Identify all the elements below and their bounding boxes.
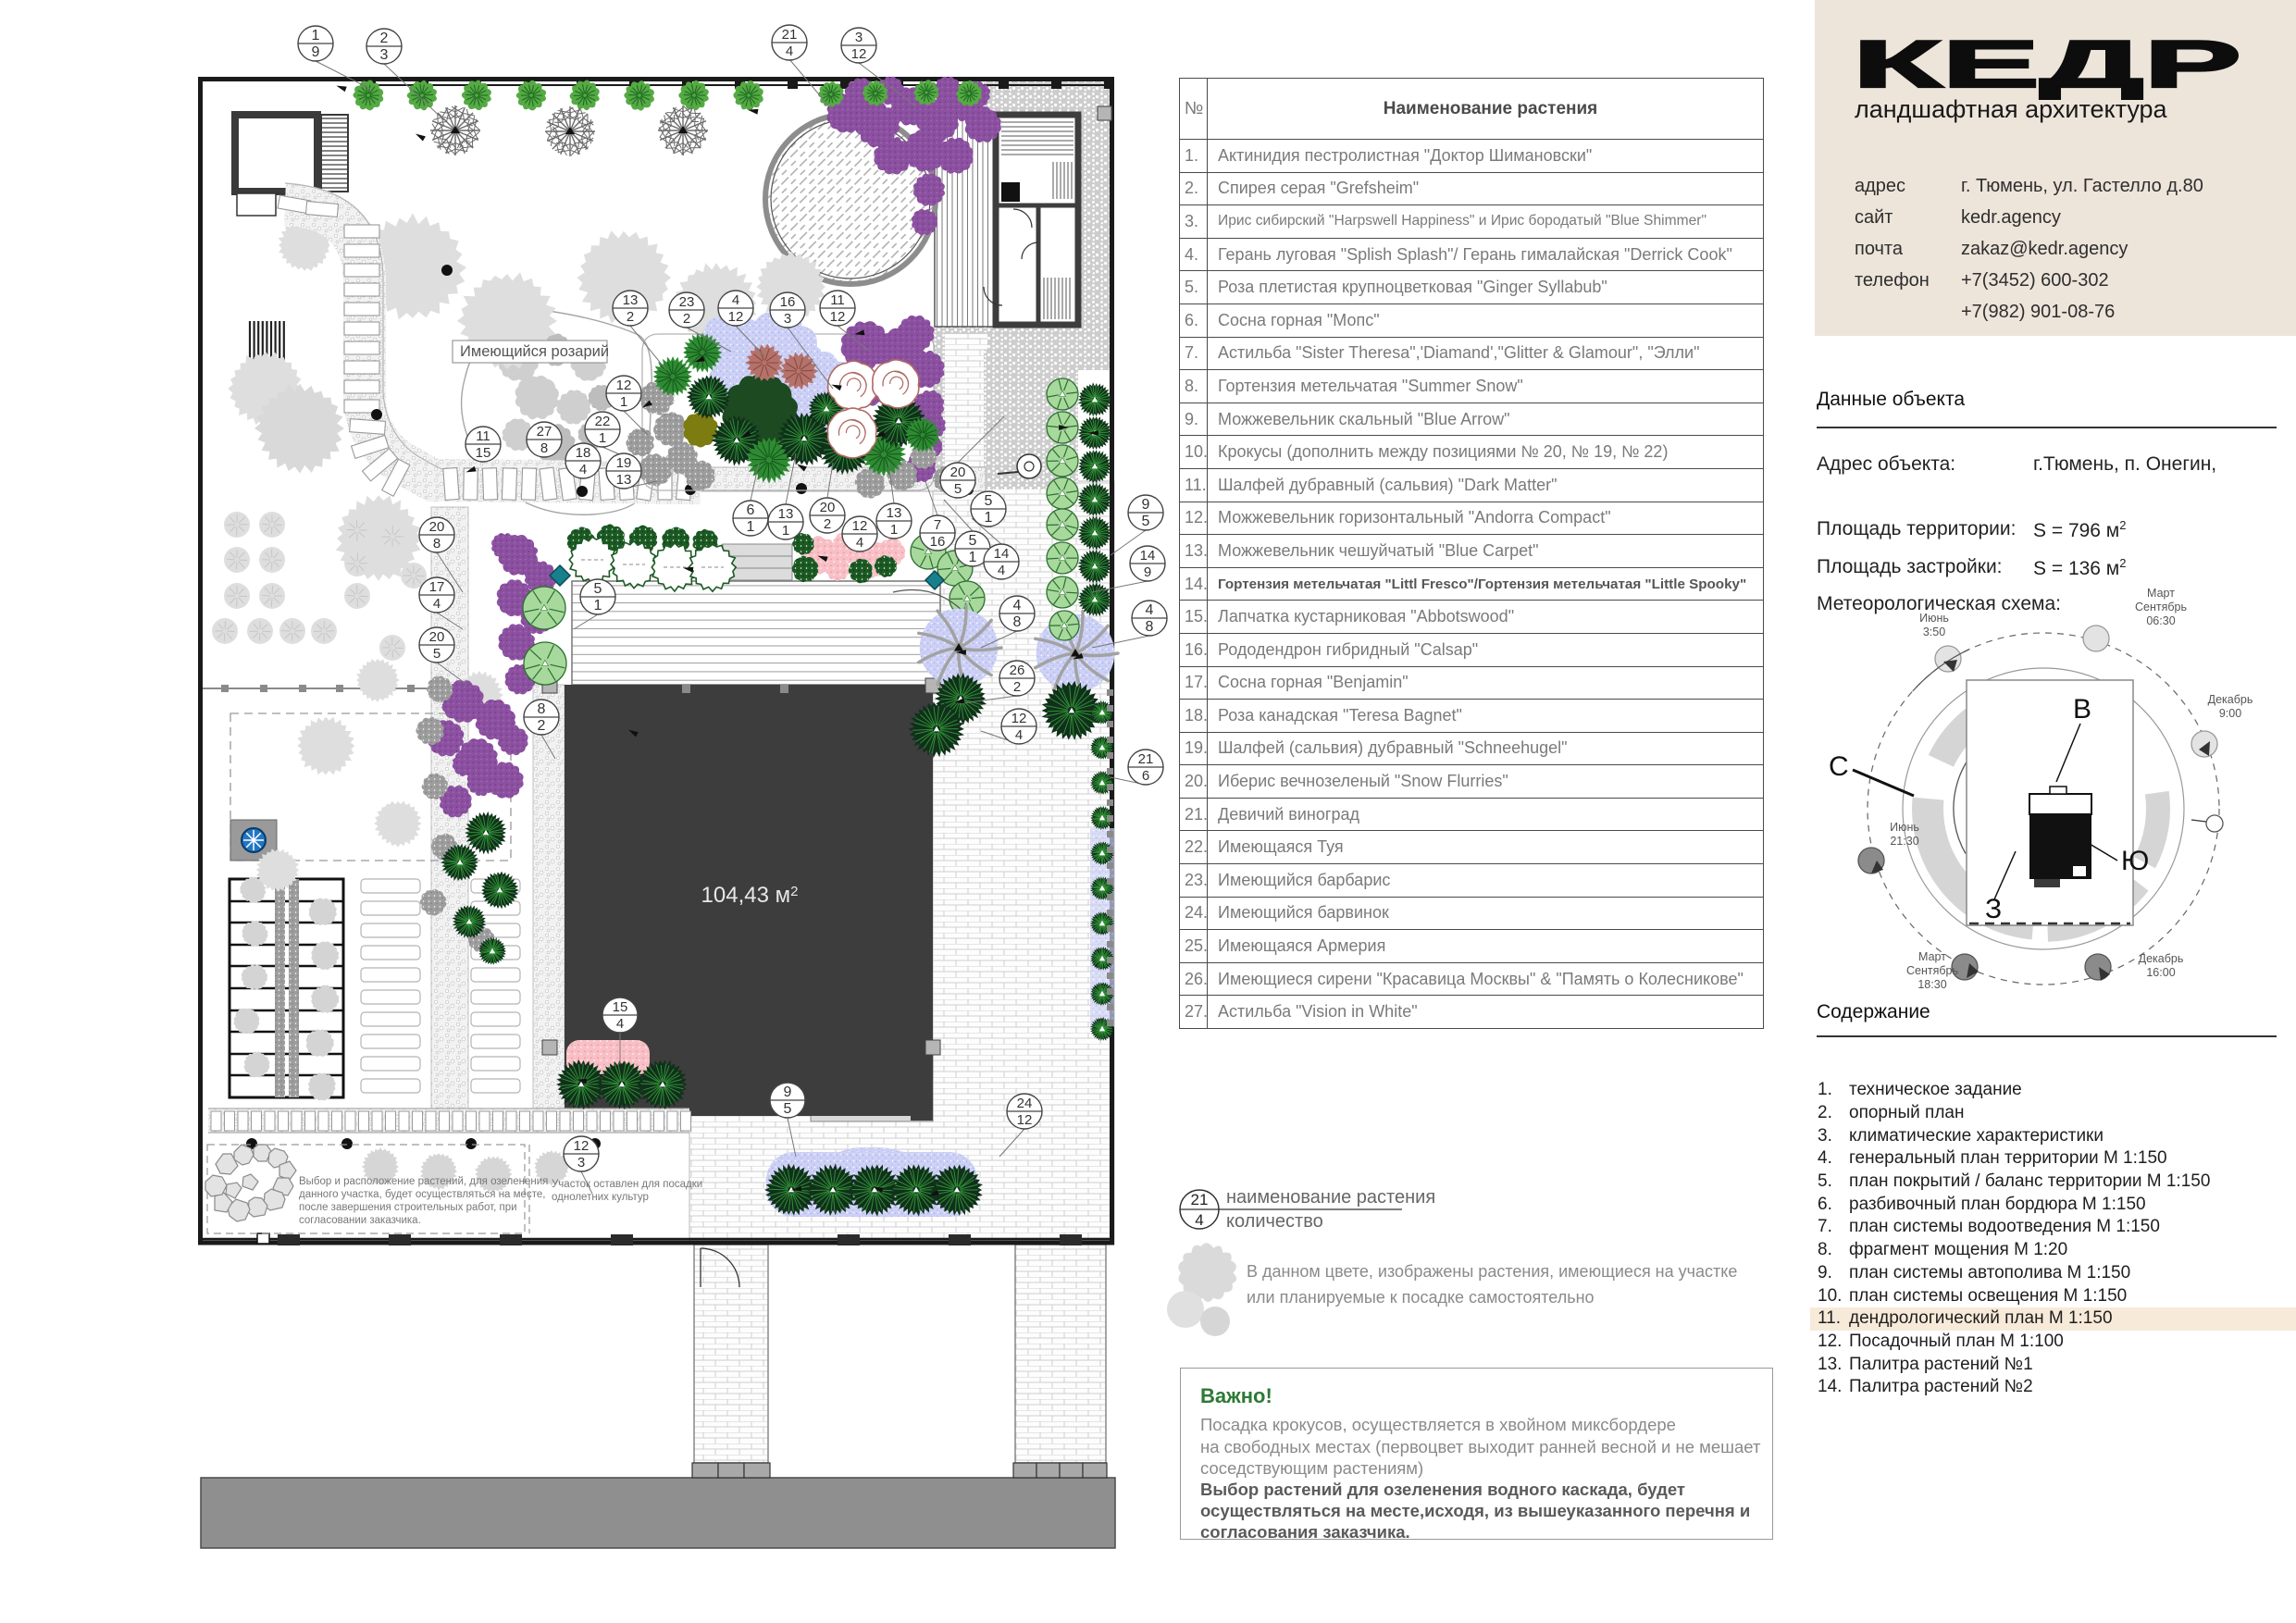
svg-text:4: 4 xyxy=(856,535,863,551)
svg-text:2: 2 xyxy=(538,718,546,734)
svg-text:12: 12 xyxy=(728,309,744,325)
svg-text:12: 12 xyxy=(574,1138,590,1154)
svg-text:Участок оставлен для посадки: Участок оставлен для посадки xyxy=(552,1179,702,1190)
svg-text:9:00: 9:00 xyxy=(2219,707,2241,720)
svg-text:5: 5 xyxy=(594,581,602,597)
svg-text:16: 16 xyxy=(930,534,946,550)
svg-text:11: 11 xyxy=(476,428,490,444)
svg-text:4: 4 xyxy=(1015,727,1023,743)
svg-text:после завершения строительных: после завершения строительных работ, при xyxy=(299,1202,517,1213)
svg-text:Выбор и расположение растений,: Выбор и расположение растений, для озеле… xyxy=(299,1176,548,1187)
svg-text:4: 4 xyxy=(616,1016,624,1032)
svg-text:18:30: 18:30 xyxy=(1917,978,1946,991)
svg-text:15: 15 xyxy=(613,999,628,1015)
svg-text:9: 9 xyxy=(312,44,320,60)
svg-text:1: 1 xyxy=(890,522,898,538)
svg-text:8: 8 xyxy=(1013,614,1022,630)
svg-text:5: 5 xyxy=(969,533,977,549)
svg-text:19: 19 xyxy=(616,455,632,471)
svg-text:3: 3 xyxy=(380,47,389,63)
svg-text:11: 11 xyxy=(830,292,845,308)
svg-text:8: 8 xyxy=(540,440,548,456)
svg-text:6: 6 xyxy=(1142,768,1149,784)
svg-text:21:30: 21:30 xyxy=(1890,835,1918,848)
svg-text:1: 1 xyxy=(782,523,789,539)
svg-text:20: 20 xyxy=(820,500,836,515)
svg-text:6: 6 xyxy=(747,502,755,518)
svg-text:З: З xyxy=(1985,894,2002,924)
svg-text:9: 9 xyxy=(1142,497,1150,513)
svg-text:1: 1 xyxy=(312,28,320,43)
svg-text:12: 12 xyxy=(1017,1112,1033,1128)
svg-text:Март: Март xyxy=(1918,950,1946,963)
svg-text:12: 12 xyxy=(616,378,632,393)
svg-text:8: 8 xyxy=(538,701,546,717)
svg-text:12: 12 xyxy=(830,309,846,325)
svg-text:1: 1 xyxy=(747,519,755,535)
svg-text:В: В xyxy=(2073,694,2091,725)
svg-text:06:30: 06:30 xyxy=(2146,614,2175,627)
svg-text:1: 1 xyxy=(594,598,602,613)
svg-text:Июнь: Июнь xyxy=(1919,612,1949,625)
svg-text:4: 4 xyxy=(1195,1211,1203,1229)
svg-text:данного участка, будет осущест: данного участка, будет осуществляться на… xyxy=(299,1189,545,1200)
svg-text:21: 21 xyxy=(1191,1191,1209,1208)
svg-text:количество: количество xyxy=(1226,1211,1323,1232)
svg-text:13: 13 xyxy=(623,292,639,308)
svg-text:согласовании заказчика.: согласовании заказчика. xyxy=(299,1215,421,1226)
svg-text:Имеющийся розарий: Имеющийся розарий xyxy=(460,343,609,360)
svg-text:21: 21 xyxy=(1138,751,1154,767)
svg-text:5: 5 xyxy=(985,493,993,509)
svg-text:1: 1 xyxy=(985,510,993,526)
svg-text:Декабрь: Декабрь xyxy=(2208,693,2253,706)
svg-text:27: 27 xyxy=(537,424,552,440)
svg-text:1: 1 xyxy=(620,394,627,410)
svg-text:20: 20 xyxy=(950,465,966,480)
svg-text:4: 4 xyxy=(1013,598,1022,613)
svg-text:2: 2 xyxy=(627,309,634,325)
svg-text:13: 13 xyxy=(778,506,794,522)
svg-text:14: 14 xyxy=(994,546,1010,562)
svg-text:Сентябрь: Сентябрь xyxy=(2135,601,2187,613)
svg-text:21: 21 xyxy=(782,27,798,43)
svg-text:20: 20 xyxy=(429,629,445,645)
svg-text:Сентябрь: Сентябрь xyxy=(1906,964,1958,977)
svg-text:Ю: Ю xyxy=(2121,846,2149,876)
svg-text:16: 16 xyxy=(780,294,796,310)
svg-text:2: 2 xyxy=(824,516,831,532)
svg-text:5: 5 xyxy=(954,481,962,497)
svg-text:3: 3 xyxy=(855,30,863,45)
svg-text:5: 5 xyxy=(1142,514,1150,529)
svg-text:22: 22 xyxy=(595,414,611,429)
svg-text:7: 7 xyxy=(934,517,941,533)
svg-text:14: 14 xyxy=(1140,548,1156,564)
svg-text:наименование растения: наименование растения xyxy=(1226,1187,1435,1208)
svg-text:104,43 м2: 104,43 м2 xyxy=(701,883,799,908)
svg-text:17: 17 xyxy=(429,579,445,595)
svg-text:Июнь: Июнь xyxy=(1890,821,1919,834)
svg-text:1: 1 xyxy=(969,550,977,565)
svg-text:КЕДР: КЕДР xyxy=(1853,28,2241,100)
svg-text:Март: Март xyxy=(2147,587,2175,600)
svg-text:3: 3 xyxy=(577,1155,585,1171)
svg-text:9: 9 xyxy=(784,1084,792,1100)
svg-text:2: 2 xyxy=(683,311,690,327)
svg-text:12: 12 xyxy=(852,518,868,534)
svg-text:4: 4 xyxy=(998,563,1005,578)
svg-text:2: 2 xyxy=(1013,679,1021,695)
svg-text:20: 20 xyxy=(429,519,445,535)
svg-text:4: 4 xyxy=(1146,602,1154,618)
svg-text:Декабрь: Декабрь xyxy=(2139,952,2184,965)
svg-text:С: С xyxy=(1829,751,1849,782)
svg-text:15: 15 xyxy=(476,445,491,461)
svg-text:3:50: 3:50 xyxy=(1923,626,1945,638)
svg-text:13: 13 xyxy=(887,505,902,521)
svg-text:23: 23 xyxy=(679,294,695,310)
svg-text:16:00: 16:00 xyxy=(2146,966,2175,979)
svg-text:8: 8 xyxy=(1146,619,1154,635)
svg-text:2: 2 xyxy=(380,31,389,46)
svg-text:4: 4 xyxy=(786,43,793,59)
svg-text:26: 26 xyxy=(1010,663,1025,678)
svg-text:8: 8 xyxy=(433,536,441,551)
svg-text:24: 24 xyxy=(1017,1096,1033,1111)
svg-text:5: 5 xyxy=(784,1101,792,1117)
svg-text:18: 18 xyxy=(576,445,591,461)
svg-text:9: 9 xyxy=(1144,564,1151,580)
svg-text:12: 12 xyxy=(1011,711,1027,726)
svg-text:3: 3 xyxy=(784,311,791,327)
svg-text:13: 13 xyxy=(616,472,632,488)
svg-text:1: 1 xyxy=(599,430,606,446)
svg-text:5: 5 xyxy=(433,646,441,662)
svg-text:4: 4 xyxy=(433,596,441,612)
svg-text:однолетних культур: однолетних культур xyxy=(552,1192,649,1203)
svg-text:12: 12 xyxy=(851,46,867,62)
svg-text:4: 4 xyxy=(732,292,739,308)
svg-text:4: 4 xyxy=(579,462,587,477)
